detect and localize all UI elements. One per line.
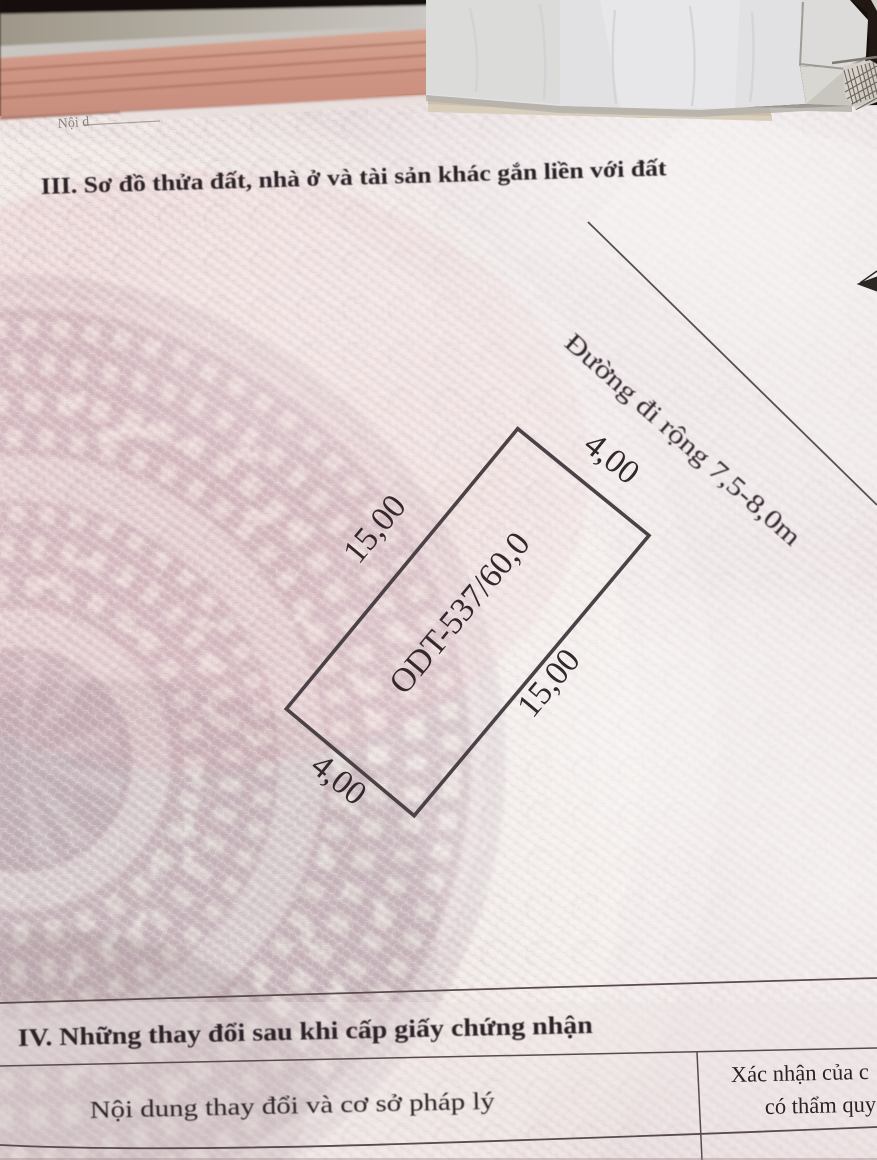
svg-text:Xác nhận của c: Xác nhận của c bbox=[731, 1059, 870, 1087]
svg-text:Nội d: Nội d bbox=[57, 115, 89, 132]
svg-text:có thẩm quy: có thẩm quy bbox=[765, 1091, 877, 1119]
